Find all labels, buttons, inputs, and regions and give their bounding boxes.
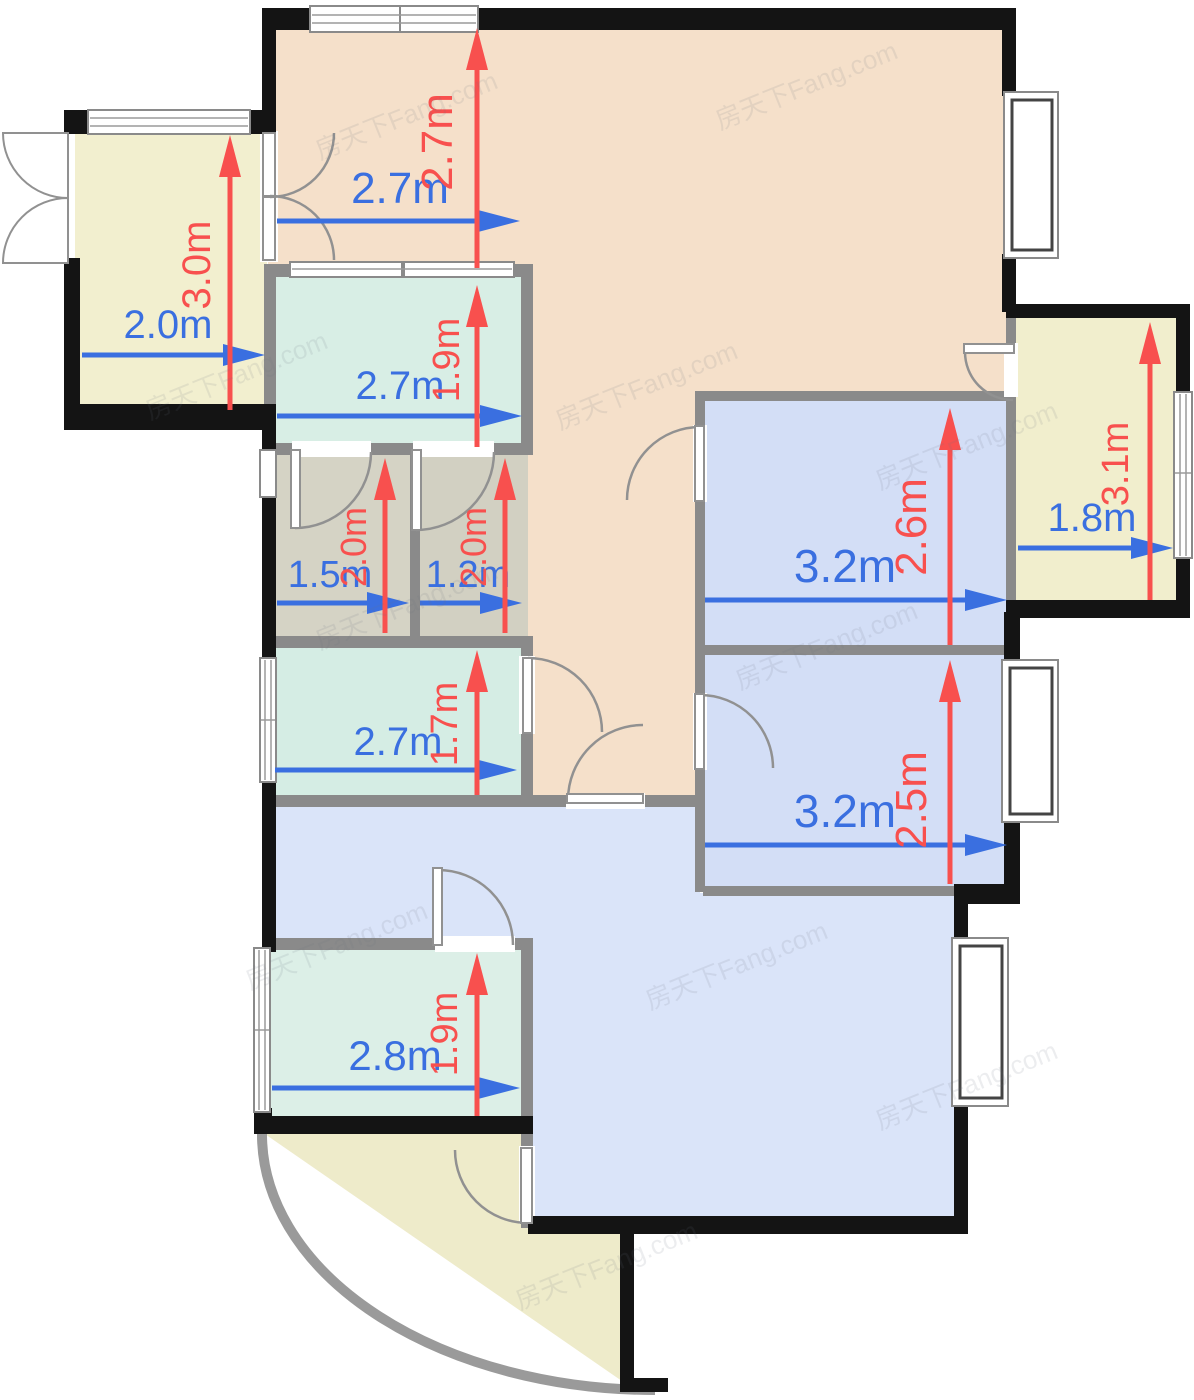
svg-text:1.9m: 1.9m <box>426 318 468 402</box>
wall-mint-top-right <box>521 264 533 455</box>
wall-bath-bottom <box>264 636 533 648</box>
gap-bath-left-door <box>292 441 371 457</box>
wall-living-bottom <box>528 1216 968 1234</box>
window-top <box>310 6 478 32</box>
window-mint-mid-left <box>260 658 276 782</box>
wall-mint-top-left <box>264 277 276 407</box>
svg-text:3.1m: 3.1m <box>1095 422 1137 506</box>
window-balcony-tl <box>88 110 250 134</box>
wall-balcony-r-right-up <box>1176 314 1190 394</box>
svg-text:1.7m: 1.7m <box>424 682 466 766</box>
window-bath-left <box>260 450 276 497</box>
wall-balcony-r-bottom <box>1006 600 1190 618</box>
svg-text:1.9m: 1.9m <box>424 992 466 1076</box>
svg-text:2.6m: 2.6m <box>887 478 936 576</box>
wall-balcony-r-top <box>1006 304 1190 318</box>
gap-bath-right-door <box>413 441 494 457</box>
wall-left-2 <box>262 495 276 662</box>
svg-text:3.0m: 3.0m <box>175 221 219 310</box>
wall-right-upper <box>1002 28 1016 96</box>
wall-bed2-bottom <box>703 886 956 896</box>
wall-entry-stub <box>620 1378 668 1392</box>
wall-mint-mid-bottom <box>264 795 533 807</box>
gap-kitchen-door <box>435 936 515 952</box>
window-mint-top <box>290 262 514 277</box>
wall-bed2-right-low <box>1004 818 1020 890</box>
wall-left-3 <box>262 780 276 952</box>
wall-kitchen-bottom <box>256 1116 533 1134</box>
door-balcony-tl-outer <box>3 133 68 263</box>
wall-balcony-r-right-low <box>1176 556 1190 608</box>
wall-bed1-top <box>703 391 1012 401</box>
svg-text:2.0m: 2.0m <box>333 507 374 587</box>
wall-left-1 <box>262 404 276 452</box>
wall-living-right-lower <box>954 1098 968 1226</box>
wall-bed2-right-high <box>1004 612 1020 664</box>
bay-window-bed2 <box>1002 660 1058 822</box>
wall-balcony-tl-corner <box>64 110 91 134</box>
wall-kitchen-right <box>521 938 533 1134</box>
floor-plan: 2.0m 2.7m 2.7m 1.5m 1.2m 2.7m 3.2m 3.2m … <box>0 0 1194 1400</box>
wall-balcony-tl-join <box>248 110 276 134</box>
svg-text:3.2m: 3.2m <box>794 785 896 837</box>
svg-text:3.2m: 3.2m <box>794 540 896 592</box>
window-balcony-right <box>1174 392 1192 558</box>
wall-right-mid <box>1002 254 1016 312</box>
floor-plan-page: 2.0m 2.7m 2.7m 1.5m 1.2m 2.7m 3.2m 3.2m … <box>0 0 1194 1400</box>
svg-text:2.5m: 2.5m <box>887 751 936 849</box>
bay-window-top-right <box>1004 92 1058 258</box>
